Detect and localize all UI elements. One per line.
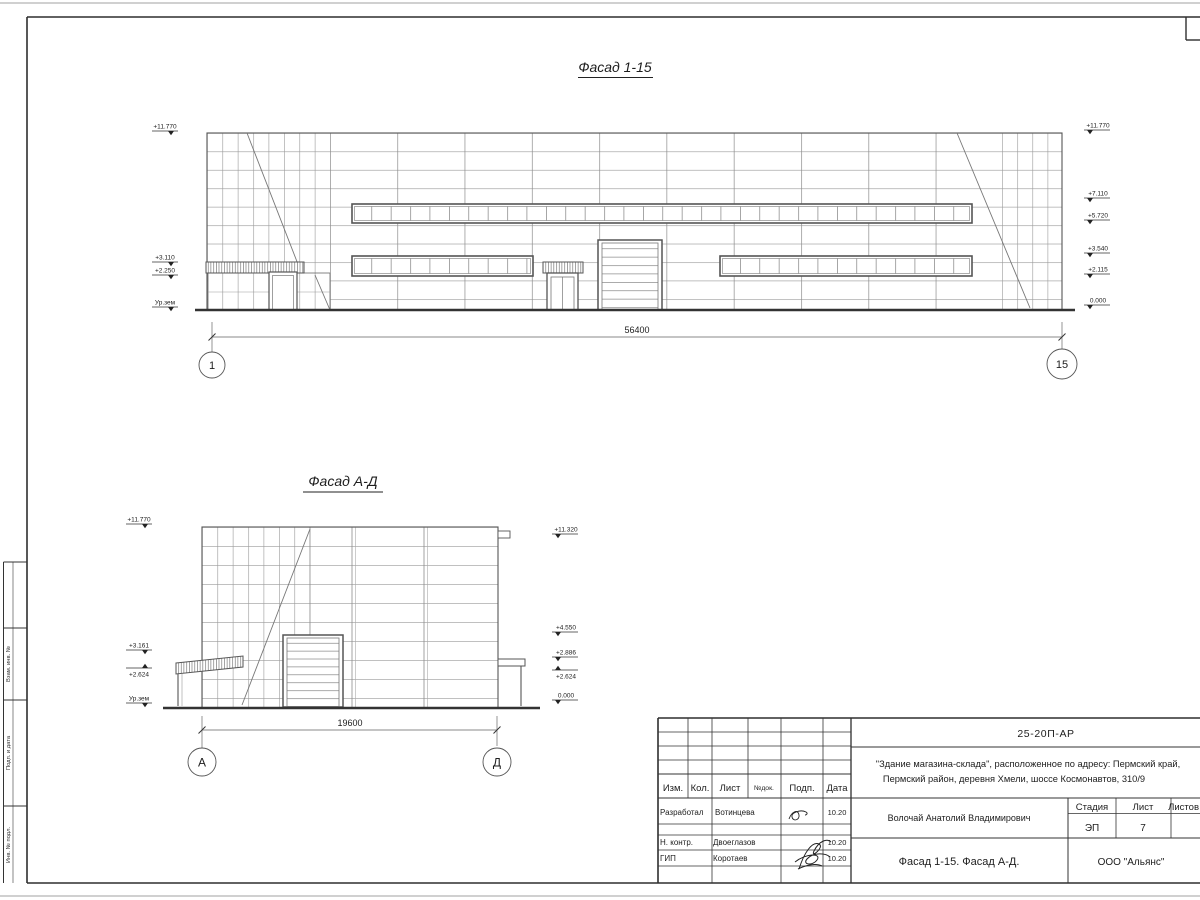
title-block: Изм. Кол. Лист №док. Подп. Дата Разработ… [658, 718, 1200, 883]
svg-text:+3.161: +3.161 [129, 643, 149, 650]
svg-text:+5.720: +5.720 [1088, 213, 1108, 220]
svg-text:+3.540: +3.540 [1088, 246, 1108, 253]
svg-text:Ур.зем: Ур.зем [129, 696, 150, 703]
elevation-mark: +11.770 [1084, 123, 1110, 135]
signature-votintseva [789, 811, 807, 820]
sheet-label: Лист [1133, 802, 1154, 813]
row-role: ГИП [660, 854, 676, 863]
svg-text:+11.770: +11.770 [127, 517, 151, 524]
stage-label: Стадия [1076, 802, 1108, 813]
window-band-lower-left [352, 256, 533, 276]
doc-number: 25-20П-АР [1017, 728, 1074, 740]
elevation-mark: +7.110 [1084, 191, 1110, 203]
svg-text:+11.320: +11.320 [554, 527, 578, 534]
col-data: Дата [826, 783, 848, 794]
sheets-label: Листов [1168, 802, 1199, 813]
svg-text:+3.110: +3.110 [155, 255, 175, 262]
col-izm: Изм. [663, 783, 683, 794]
axis-bubble-a: А [188, 748, 216, 776]
side-stamp-strip: Взам. инв. № Подп. и дата Инв. № подл. [4, 562, 28, 883]
storefront-door [269, 272, 297, 310]
axis-bubble-d: Д [483, 748, 511, 776]
svg-text:+7.110: +7.110 [1088, 191, 1108, 198]
svg-text:А: А [198, 756, 206, 770]
elevation-mark: +2.624 [126, 664, 152, 679]
object-address-line2: Пермский район, деревня Хмели, шоссе Кос… [883, 774, 1145, 784]
axis-bubble-1: 1 [199, 352, 225, 378]
company-name: ООО "Альянс" [1098, 857, 1165, 868]
title-block-header: Изм. Кол. Лист №док. Подп. Дата [663, 783, 848, 794]
elevation-mark: +4.550 [552, 625, 578, 637]
row-date: 10.20 [828, 838, 847, 847]
stage-value: ЭП [1085, 823, 1099, 834]
elevation-mark: Ур.зем [126, 696, 152, 708]
svg-text:Д: Д [493, 756, 501, 770]
elevation-mark: 0.000 [552, 693, 578, 705]
row-date: 10.20 [828, 808, 847, 817]
axis-bubble-15: 15 [1047, 349, 1077, 379]
window-band-lower-right [720, 256, 972, 276]
dimension-a-d: 19600 А Д [188, 716, 511, 776]
row-date: 10.20 [828, 854, 847, 863]
svg-text:+2.250: +2.250 [155, 268, 175, 275]
svg-text:+4.550: +4.550 [556, 625, 576, 632]
elevation-mark: +11.320 [552, 527, 578, 539]
object-address-line1: "Здание магазина-склада", расположенное … [876, 759, 1180, 769]
sectional-gate [598, 240, 662, 310]
facade-1-15-drawing [195, 133, 1075, 310]
window-band-upper [352, 204, 972, 223]
elevation-mark: +3.540 [1084, 246, 1110, 258]
facade-1-15-title: Фасад 1-15 [578, 59, 652, 75]
svg-text:0.000: 0.000 [558, 693, 575, 700]
signature-scribble [795, 840, 831, 869]
elevation-mark: +5.720 [1084, 213, 1110, 225]
elevation-mark: Ур.зем [152, 300, 178, 312]
parapet-tab [498, 531, 510, 538]
elevation-mark: +2.886 [552, 650, 578, 662]
row-role: Разработал [660, 808, 704, 817]
col-kol: Кол. [691, 783, 710, 794]
svg-text:0.000: 0.000 [1090, 298, 1107, 305]
col-ndoc: №док. [754, 785, 774, 792]
drawing-canvas: Взам. инв. № Подп. и дата Инв. № подл. Ф… [0, 0, 1200, 900]
facade-a-d-title: Фасад А-Д [308, 473, 377, 489]
elevation-mark: +2.624 [552, 666, 578, 681]
entrance-door [543, 262, 583, 310]
svg-text:+11.770: +11.770 [153, 124, 177, 131]
side-stamp-label: Инв. № подл. [6, 827, 12, 863]
dimension-value: 56400 [624, 325, 649, 335]
svg-text:Ур.зем: Ур.зем [155, 300, 176, 307]
facade-a-d-drawing [163, 527, 540, 708]
side-stamp-label: Подп. и дата [6, 735, 12, 770]
elevation-marks-2-left: +11.770 +3.161 +2.624 Ур.зем [126, 517, 152, 708]
chief-name: Волочай Анатолий Владимирович [888, 813, 1031, 823]
svg-text:1: 1 [209, 360, 215, 372]
corner-box [1186, 17, 1200, 40]
facade-1-15-view: Фасад 1-15 [152, 59, 1110, 379]
drawing-sheet: Взам. инв. № Подп. и дата Инв. № подл. Ф… [0, 0, 1200, 900]
row-name: Двоеглазов [713, 838, 756, 847]
elevation-mark: +11.770 [126, 517, 152, 529]
svg-text:+2.886: +2.886 [556, 650, 576, 657]
elevation-marks-left: +11.770 +3.110 +2.250 Ур.зем [152, 124, 178, 312]
svg-text:+2.115: +2.115 [1088, 267, 1108, 274]
row-role: Н. контр. [660, 838, 693, 847]
signature-rows: Разработал Вотинцева 10.20 Н. контр. Дво… [660, 808, 846, 869]
svg-text:15: 15 [1056, 359, 1068, 371]
sheet-value: 7 [1140, 823, 1146, 834]
elevation-marks-right: +11.770 +7.110 +5.720 +3.540 +2.115 [1084, 123, 1110, 310]
right-canopy [498, 659, 525, 706]
dimension-value: 19600 [337, 718, 362, 728]
elevation-mark: 0.000 [1084, 298, 1110, 310]
svg-text:+11.770: +11.770 [1086, 123, 1110, 130]
col-podp: Подп. [789, 783, 814, 794]
elevation-mark: +11.770 [152, 124, 178, 136]
side-stamp-label: Взам. инв. № [6, 646, 12, 682]
row-name: Вотинцева [715, 808, 755, 817]
elevation-mark: +2.115 [1084, 267, 1110, 279]
elevation-mark: +2.250 [152, 268, 178, 280]
drawing-title: Фасад 1-15. Фасад А-Д. [899, 856, 1020, 868]
svg-text:+2.624: +2.624 [556, 674, 576, 681]
sectional-gate-2 [283, 635, 343, 707]
row-name: Коротаев [713, 854, 748, 863]
facade-a-d-view: Фасад А-Д [126, 473, 578, 776]
svg-text:+2.624: +2.624 [129, 672, 149, 679]
col-list: Лист [720, 783, 741, 794]
elevation-mark: +3.161 [126, 643, 152, 655]
dimension-1-15: 56400 1 15 [199, 322, 1077, 379]
elevation-marks-2-right: +11.320 +4.550 +2.886 +2.624 0.000 [552, 527, 578, 705]
elevation-mark: +3.110 [152, 255, 178, 267]
